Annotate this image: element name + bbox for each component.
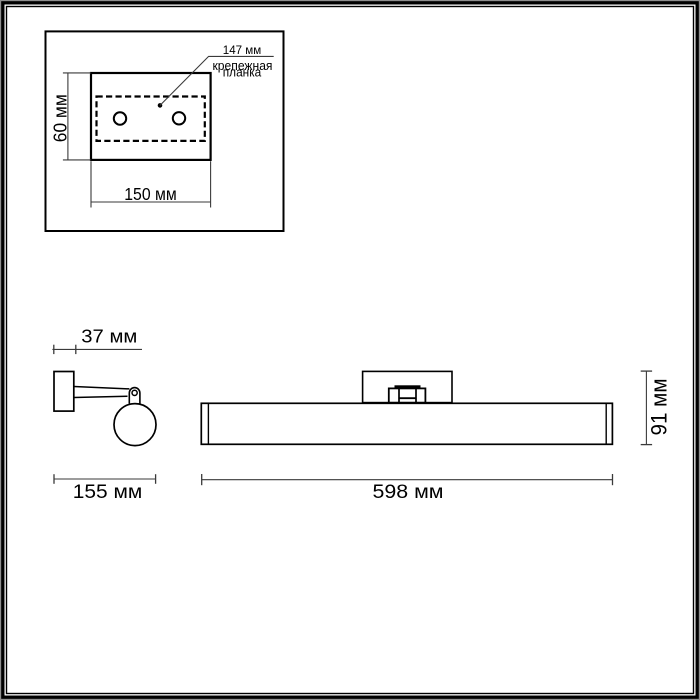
svg-text:60 мм: 60 мм	[49, 94, 70, 142]
svg-text:150 мм: 150 мм	[124, 184, 177, 204]
svg-text:планка: планка	[223, 66, 262, 80]
svg-text:598 мм: 598 мм	[373, 482, 444, 503]
svg-text:91 мм: 91 мм	[647, 379, 672, 436]
svg-text:37 мм: 37 мм	[81, 327, 137, 348]
svg-text:147 мм: 147 мм	[223, 43, 262, 57]
svg-text:155 мм: 155 мм	[73, 482, 143, 503]
